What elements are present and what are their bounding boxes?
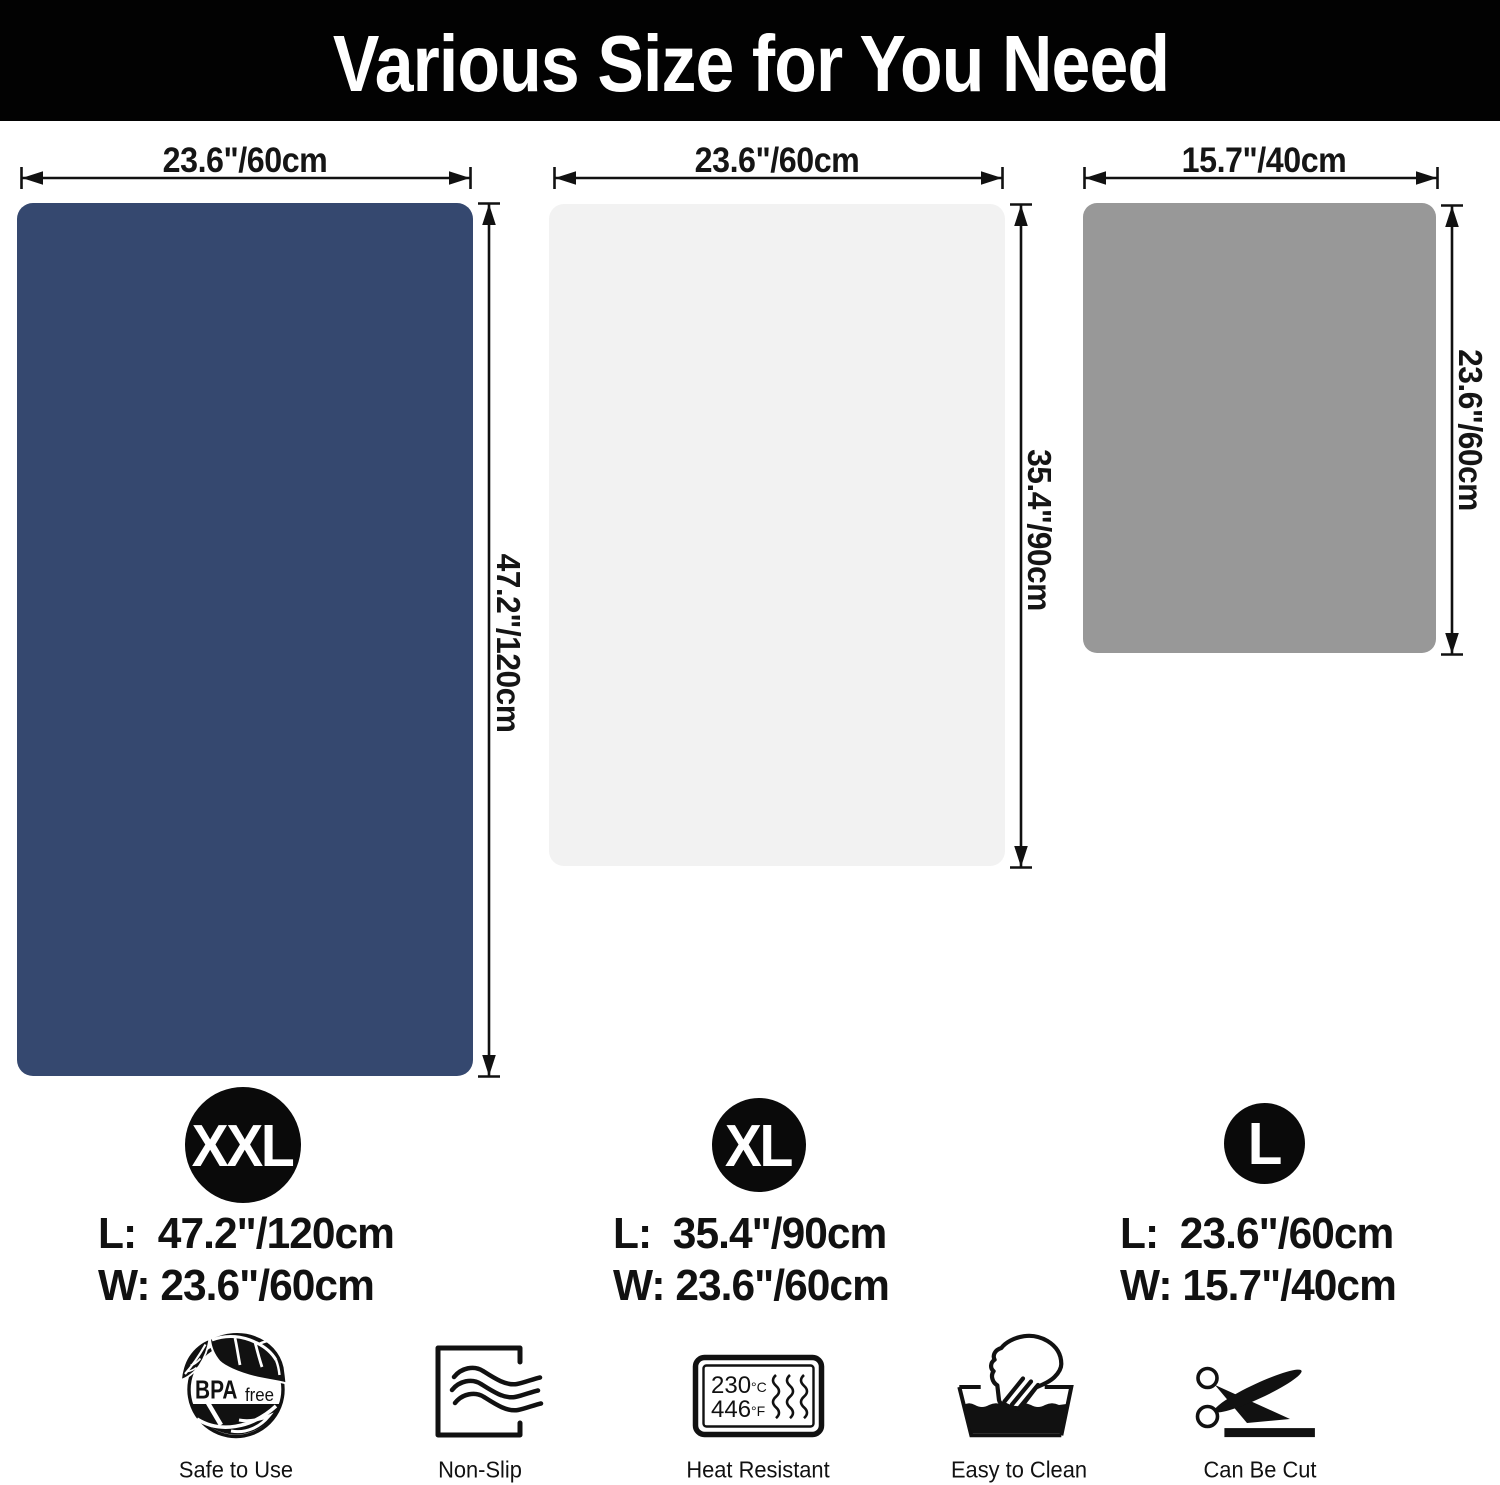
svg-text:230: 230 bbox=[711, 1372, 751, 1399]
svg-text:°C: °C bbox=[751, 1379, 767, 1395]
svg-text:free: free bbox=[245, 1385, 274, 1405]
svg-text:BPA: BPA bbox=[195, 1375, 238, 1405]
svg-text:446: 446 bbox=[711, 1396, 751, 1423]
svg-text:°F: °F bbox=[751, 1403, 765, 1419]
